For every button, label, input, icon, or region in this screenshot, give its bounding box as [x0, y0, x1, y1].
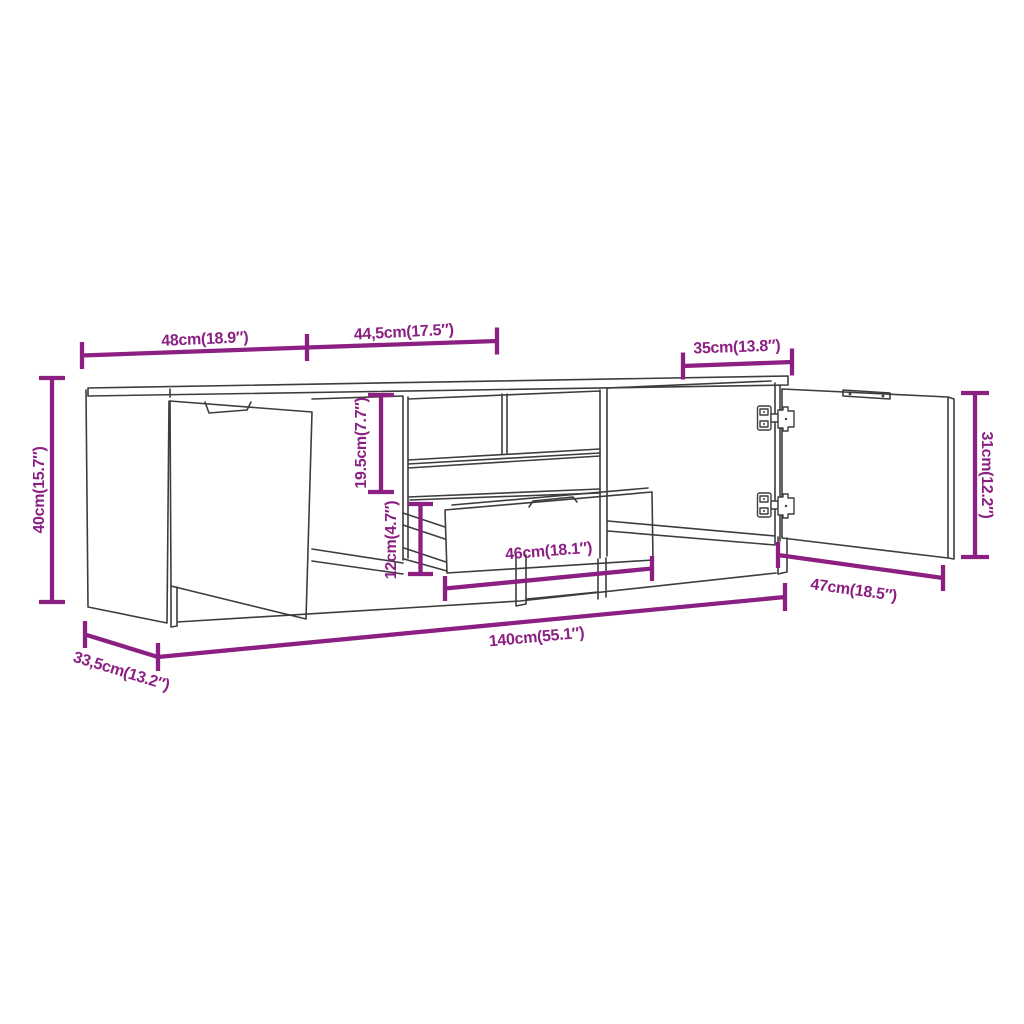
dim-label-19-5cm: 19.5cm(7.7″)	[353, 397, 370, 488]
dim-label-47cm: 47cm(18.5″)	[809, 576, 898, 605]
dim-upper-compartment-height: 19.5cm(7.7″)	[353, 395, 394, 492]
dim-right-door-width: 35cm(13.8″)	[683, 337, 792, 379]
dim-left-section-width: 48cm(18.9″)	[82, 329, 307, 369]
dim-label-140cm: 140cm(55.1″)	[488, 625, 585, 651]
dim-open-door-width: 47cm(18.5″)	[778, 542, 943, 605]
plate-screw-dot	[849, 393, 852, 396]
dim-overall-width: 140cm(55.1″)	[158, 583, 785, 671]
dim-door-height: 31cm(12.2″)	[961, 393, 995, 557]
dim-label-40cm: 40cm(15.7″)	[31, 446, 48, 533]
dim-overall-depth: 33,5cm(13.2″)	[71, 621, 171, 694]
cabinet-front-frame	[171, 381, 787, 627]
right-compartment	[608, 383, 780, 545]
left-door-open	[170, 401, 312, 619]
dim-label-48cm: 48cm(18.9″)	[161, 329, 249, 350]
dim-label-46cm: 46cm(18.1″)	[505, 540, 593, 564]
dim-label-31cm: 31cm(12.2″)	[978, 431, 995, 518]
dim-drawer-width: 46cm(18.1″)	[445, 540, 652, 601]
cabinet-left-side-panel	[86, 390, 169, 623]
dimension-annotations: 48cm(18.9″) 44,5cm(17.5″) 35cm(13.8″) 40…	[31, 321, 995, 694]
plate-screw-dot	[882, 395, 885, 398]
middle-shelf-and-closed-drawer	[408, 449, 600, 500]
dim-middle-section-width: 44,5cm(17.5″)	[307, 321, 497, 354]
right-door-open	[782, 389, 954, 559]
dim-label-12cm: 12cm(4.7″)	[383, 501, 400, 580]
dim-label-44-5cm: 44,5cm(17.5″)	[353, 321, 454, 343]
dim-label-35cm: 35cm(13.8″)	[693, 337, 781, 357]
furniture-dimension-diagram: 48cm(18.9″) 44,5cm(17.5″) 35cm(13.8″) 40…	[0, 0, 1024, 1024]
dim-overall-height: 40cm(15.7″)	[31, 378, 65, 602]
diagram-canvas: 48cm(18.9″) 44,5cm(17.5″) 35cm(13.8″) 40…	[0, 0, 1024, 1024]
